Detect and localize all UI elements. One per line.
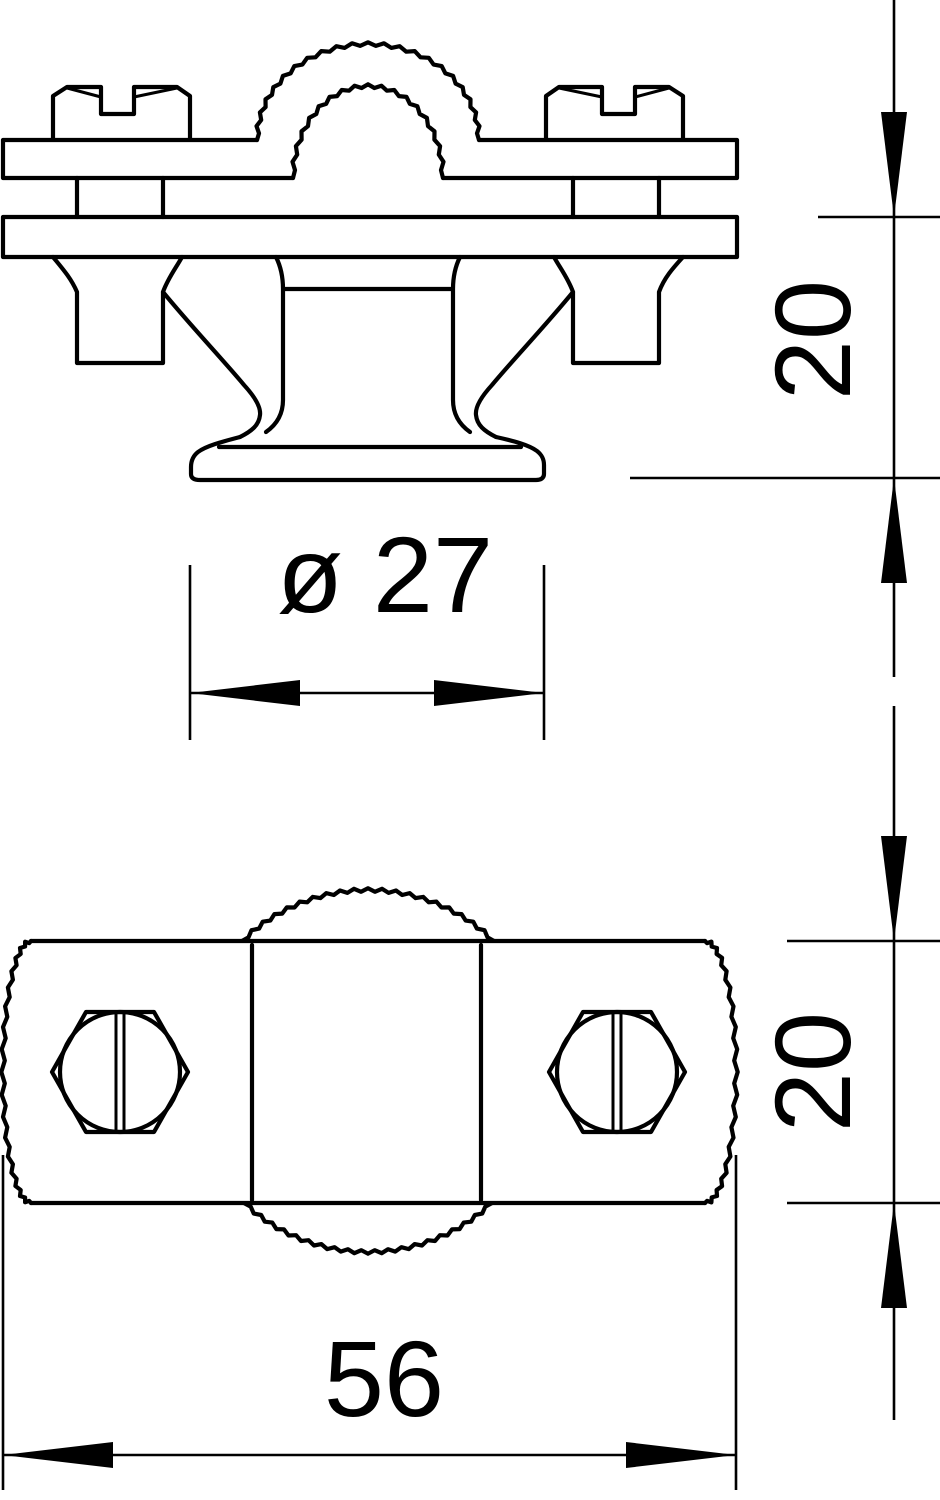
screw-head-right-chamfer-icon bbox=[559, 88, 669, 97]
screw-head-left-chamfer-icon bbox=[67, 88, 177, 97]
side-view bbox=[3, 42, 737, 480]
screw-shanks bbox=[77, 178, 659, 217]
arrow-up-icon bbox=[881, 1203, 907, 1308]
arrow-left-icon bbox=[190, 680, 300, 706]
clamp-plate-serrated-edge-right bbox=[705, 941, 738, 1203]
saddle-strap-outer-arc bbox=[257, 42, 480, 140]
dimension-foot-diameter: ø 27 bbox=[190, 514, 544, 740]
dimension-label-foot-diameter: ø 27 bbox=[277, 514, 493, 635]
screw-square-neck-right bbox=[554, 257, 683, 363]
body-leg-left bbox=[163, 292, 260, 437]
dimension-label-side-height: 20 bbox=[752, 280, 873, 400]
hex-bolt-left-circle bbox=[60, 1012, 180, 1132]
saddle-edges bbox=[252, 945, 481, 1200]
dimension-side-height: 20 bbox=[630, 0, 940, 1420]
drawing-page: 20 ø 27 20 56 bbox=[0, 0, 940, 1500]
screw-head-right bbox=[546, 87, 683, 139]
dimension-label-plan-height: 20 bbox=[752, 1012, 873, 1132]
screw-head-left bbox=[53, 87, 190, 139]
arrow-right-icon bbox=[434, 680, 544, 706]
arrow-up-icon bbox=[881, 478, 907, 583]
center-pedestal bbox=[266, 257, 470, 432]
plan-view bbox=[1, 888, 737, 1253]
clamp-foot bbox=[191, 437, 544, 480]
arrow-right-icon bbox=[626, 1442, 736, 1468]
clamp-plate-serrated-edge-left bbox=[1, 941, 31, 1203]
arrow-left-icon bbox=[3, 1442, 113, 1468]
arrow-down-icon bbox=[881, 112, 907, 217]
hex-bolt-right bbox=[549, 1012, 685, 1132]
dimension-label-plan-width: 56 bbox=[324, 1318, 444, 1439]
dimension-plan-width: 56 bbox=[3, 1155, 736, 1490]
body-leg-right bbox=[476, 292, 573, 437]
hex-bolt-left-slot bbox=[116, 1012, 124, 1132]
upper-plate bbox=[3, 140, 737, 178]
dimension-plan-height: 20 bbox=[752, 836, 940, 1308]
arrow-down-icon bbox=[881, 836, 907, 941]
clamp-plate-edges bbox=[31, 941, 705, 1203]
hex-bolt-right-slot bbox=[613, 1012, 621, 1132]
screw-square-neck-left bbox=[53, 257, 182, 363]
conductor-top-arc bbox=[242, 888, 493, 941]
lower-plate bbox=[3, 217, 737, 257]
technical-drawing: 20 ø 27 20 56 bbox=[0, 0, 940, 1500]
hex-bolt-left bbox=[52, 1012, 188, 1132]
hex-bolt-right-circle bbox=[557, 1012, 677, 1132]
conductor-bottom-arc bbox=[245, 1203, 492, 1253]
saddle-strap-inner-arc bbox=[293, 84, 444, 178]
